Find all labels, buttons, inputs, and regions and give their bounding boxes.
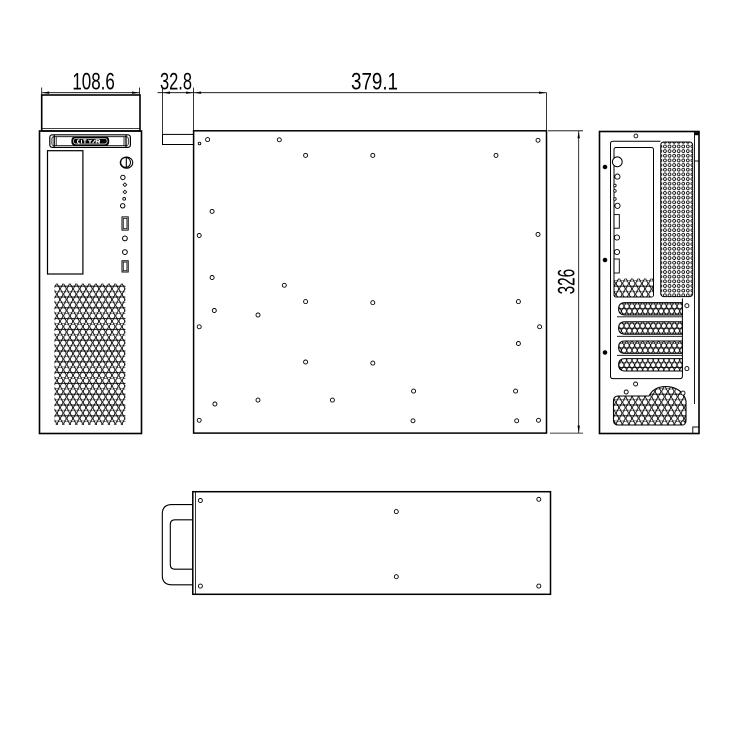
svg-text:32.8: 32.8 xyxy=(160,69,192,96)
svg-text:326: 326 xyxy=(553,269,580,295)
svg-text:379.1: 379.1 xyxy=(351,69,398,96)
svg-text:108.6: 108.6 xyxy=(72,69,115,96)
